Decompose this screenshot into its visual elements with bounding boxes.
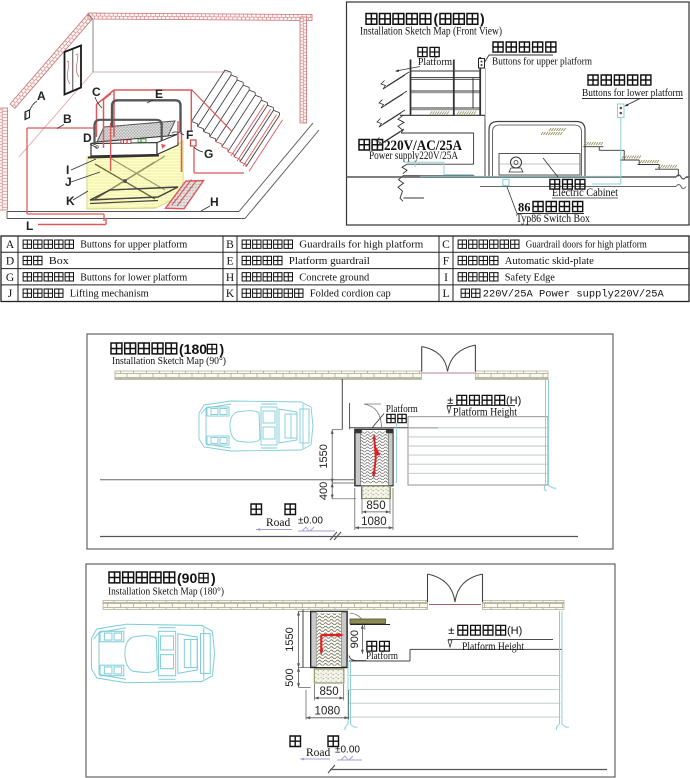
svg-text:B: B bbox=[63, 112, 72, 126]
svg-text:Buttons for lower platform: Buttons for lower platform bbox=[80, 271, 187, 283]
svg-text:400: 400 bbox=[318, 482, 330, 500]
svg-text:L: L bbox=[442, 288, 449, 300]
svg-text:Platform: Platform bbox=[366, 650, 398, 662]
svg-text:1550: 1550 bbox=[318, 444, 330, 468]
svg-text:500: 500 bbox=[284, 668, 296, 686]
svg-text:Typ86 Switch Box: Typ86 Switch Box bbox=[516, 211, 590, 225]
svg-text:G: G bbox=[204, 147, 213, 161]
svg-text:Guardrail doors for high platf: Guardrail doors for high platform bbox=[526, 239, 647, 251]
svg-text:Electric Cabinet: Electric Cabinet bbox=[552, 185, 619, 199]
svg-text:F: F bbox=[443, 255, 449, 267]
svg-text:(H): (H) bbox=[507, 625, 522, 637]
svg-text:Box: Box bbox=[49, 255, 70, 267]
svg-text:D: D bbox=[6, 255, 14, 267]
svg-text:±: ± bbox=[447, 393, 454, 407]
svg-text:Buttons for upper platform: Buttons for upper platform bbox=[80, 239, 187, 251]
svg-text:Road: Road bbox=[306, 747, 331, 759]
svg-text:I: I bbox=[444, 272, 448, 284]
svg-text:J: J bbox=[65, 175, 72, 189]
svg-text:900: 900 bbox=[349, 630, 361, 648]
svg-text:Automatic skid-plate: Automatic skid-plate bbox=[505, 255, 594, 267]
svg-text:1080: 1080 bbox=[315, 706, 341, 718]
svg-text:L: L bbox=[26, 219, 33, 233]
svg-text:Platform Height: Platform Height bbox=[453, 407, 518, 419]
svg-text:Power supply220V/25A: Power supply220V/25A bbox=[369, 150, 459, 162]
svg-text:Buttons for upper platform: Buttons for upper platform bbox=[492, 56, 592, 68]
svg-text:Lifting mechanism: Lifting mechanism bbox=[70, 288, 149, 300]
svg-text:Platform guardrail: Platform guardrail bbox=[289, 255, 370, 267]
svg-text:C: C bbox=[92, 85, 101, 99]
svg-text:G: G bbox=[6, 272, 14, 284]
svg-text:220V/25A Power supply220V/25A: 220V/25A Power supply220V/25A bbox=[483, 289, 665, 301]
svg-text:(90: (90 bbox=[177, 570, 197, 586]
svg-text:H: H bbox=[210, 195, 219, 209]
svg-text:C: C bbox=[442, 239, 450, 251]
svg-text:Road: Road bbox=[266, 517, 291, 529]
svg-text:1080: 1080 bbox=[361, 516, 387, 528]
svg-text:E: E bbox=[226, 255, 233, 267]
svg-text:Safety Edge: Safety Edge bbox=[505, 271, 555, 283]
svg-text:K: K bbox=[66, 194, 75, 208]
svg-text:850: 850 bbox=[320, 686, 339, 698]
svg-text:Platform Height: Platform Height bbox=[462, 641, 525, 653]
svg-text:A: A bbox=[37, 89, 46, 103]
svg-text:850: 850 bbox=[366, 500, 385, 512]
svg-text:D: D bbox=[83, 131, 92, 145]
svg-text:1550: 1550 bbox=[284, 627, 296, 651]
svg-text:Guardrails for high platform: Guardrails for high platform bbox=[299, 239, 423, 251]
svg-text:F: F bbox=[186, 128, 193, 142]
svg-text:±0.00: ±0.00 bbox=[335, 745, 360, 756]
svg-text:±: ± bbox=[448, 623, 455, 637]
svg-text:Concrete ground: Concrete ground bbox=[299, 271, 369, 283]
svg-text:K: K bbox=[226, 288, 235, 300]
svg-text:Installation Sketch Map (90°): Installation Sketch Map (90°) bbox=[112, 355, 226, 367]
svg-text:(: ( bbox=[434, 11, 439, 27]
svg-text:±0.00: ±0.00 bbox=[298, 516, 323, 527]
svg-text:Folded cordion cap: Folded cordion cap bbox=[310, 288, 391, 300]
svg-text:A: A bbox=[6, 239, 15, 251]
svg-text:J: J bbox=[8, 288, 13, 300]
svg-text:Buttons for lower platform: Buttons for lower platform bbox=[582, 87, 683, 99]
svg-text:): ) bbox=[480, 11, 485, 27]
svg-text:B: B bbox=[226, 239, 234, 251]
svg-text:Platform: Platform bbox=[418, 56, 452, 68]
svg-text:Installation Sketch Map (180°): Installation Sketch Map (180°) bbox=[108, 586, 224, 598]
svg-text:Platform: Platform bbox=[386, 403, 418, 415]
svg-text:): ) bbox=[211, 570, 216, 586]
svg-text:H: H bbox=[226, 272, 234, 284]
svg-text:Installation Sketch Map (Front: Installation Sketch Map (Front View) bbox=[360, 26, 502, 38]
svg-text:E: E bbox=[155, 87, 163, 101]
